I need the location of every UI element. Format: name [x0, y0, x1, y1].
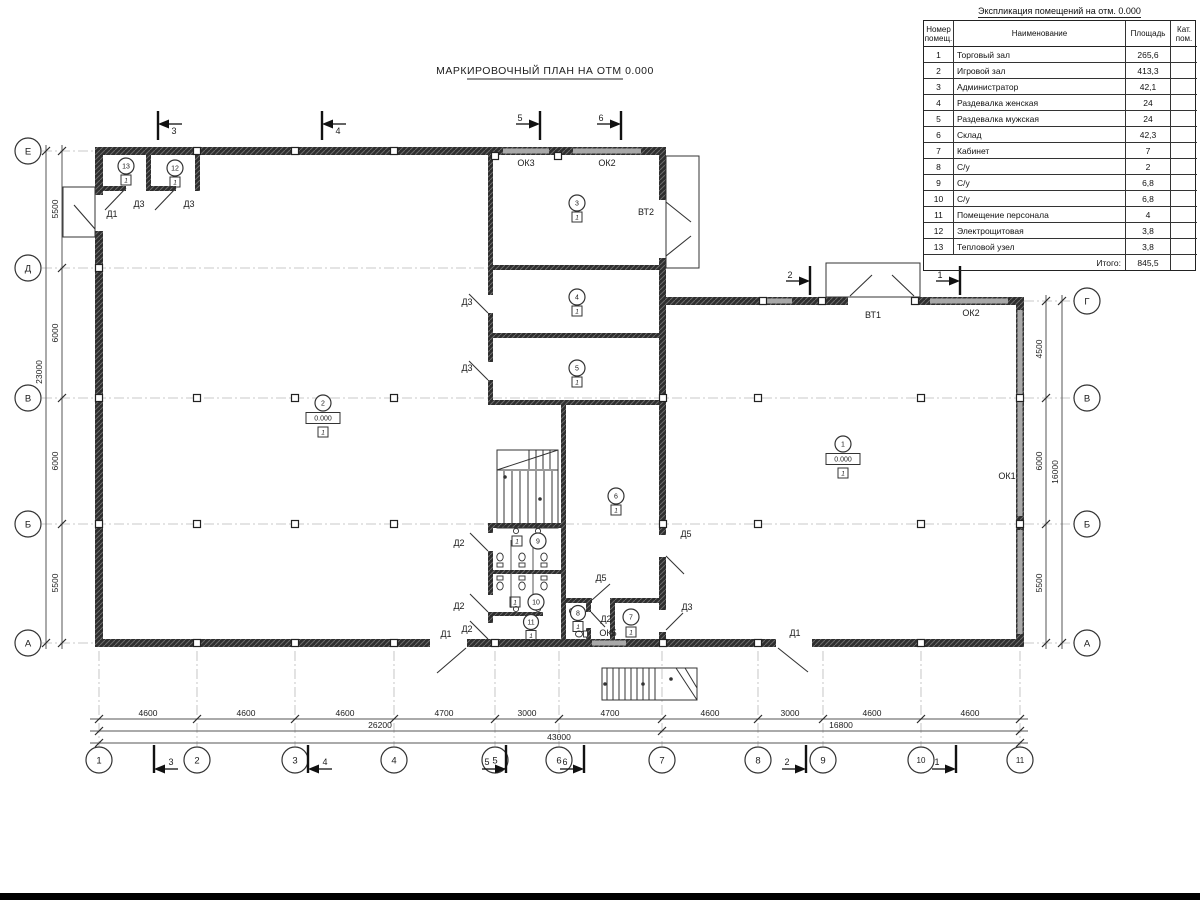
door-label-d3-4: Д3 — [461, 363, 472, 373]
door-label-d5-2: Д5 — [595, 573, 606, 583]
room-3-number: 3 — [575, 201, 579, 208]
dim-total: 43000 — [547, 732, 571, 742]
axis-7: 7 — [659, 756, 664, 767]
row-num: 6 — [924, 127, 954, 143]
axis-6: 6 — [556, 756, 561, 767]
window-label-ok1: ОК1 — [998, 471, 1015, 481]
dim-r2: 5500 — [1034, 573, 1044, 592]
row-name: Тепловой узел — [954, 239, 1126, 255]
axis-A-right: А — [1084, 639, 1091, 650]
row-name: Торговый зал — [954, 47, 1126, 63]
row-name: Игровой зал — [954, 63, 1126, 79]
sec-5-bottom: 5 — [484, 757, 489, 767]
col-header-area: Площадь — [1126, 21, 1171, 47]
sec-2-bottom: 2 — [784, 757, 789, 767]
row-area: 42,3 — [1126, 127, 1171, 143]
axis-G: Г — [1084, 297, 1089, 308]
col-header-name: Наименование — [954, 21, 1126, 47]
room-12-floor-type: 1 — [173, 180, 177, 187]
gate-label-vt1: ВТ1 — [865, 310, 881, 320]
room-3-floor-type: 1 — [575, 215, 579, 222]
dim-l2: 6000 — [50, 451, 60, 470]
row-name: Раздевалка мужская — [954, 111, 1126, 127]
row-area: 265,6 — [1126, 47, 1171, 63]
room-8-floor-type: 1 — [576, 624, 580, 631]
room-13-floor-type: 1 — [124, 178, 128, 185]
axis-V-right: В — [1084, 394, 1090, 405]
row-area: 3,8 — [1126, 239, 1171, 255]
axis-11: 11 — [1016, 756, 1025, 765]
room-5-number: 5 — [575, 366, 579, 373]
row-area: 4 — [1126, 207, 1171, 223]
door-label-d1-bottom-left: Д1 — [440, 629, 451, 639]
room-11-floor-type: 1 — [529, 633, 533, 640]
door-label-d3-2: Д3 — [183, 199, 194, 209]
room-11-number: 11 — [527, 620, 534, 627]
row-num: 10 — [924, 191, 954, 207]
row-num: 2 — [924, 63, 954, 79]
axis-D: Д — [25, 264, 32, 275]
room-2-elevation: 0.000 — [314, 416, 332, 423]
axis-E: Е — [25, 147, 31, 158]
row-cat — [1171, 95, 1197, 111]
external-stair — [602, 668, 697, 700]
schedule-title: Экспликация помещений на отм. 0.000 — [978, 6, 1141, 18]
row-area: 24 — [1126, 111, 1171, 127]
door-label-d3-3: Д3 — [461, 297, 472, 307]
axis-B-right: Б — [1084, 520, 1090, 531]
door-label-d2-1: Д2 — [453, 538, 464, 548]
axis-V-left: В — [25, 394, 31, 405]
row-name: С/у — [954, 175, 1126, 191]
door-openings — [94, 195, 916, 648]
col-header-area-text: Площадь — [1131, 29, 1166, 38]
sec-2-top: 2 — [787, 270, 792, 280]
room-1-number: 1 — [841, 442, 845, 449]
axis-4: 4 — [391, 756, 396, 767]
row-num: 5 — [924, 111, 954, 127]
room-7-floor-type: 1 — [629, 630, 633, 637]
axis-3: 3 — [292, 756, 297, 767]
row-name: Раздевалка женская — [954, 95, 1126, 111]
dim-b7: 3000 — [781, 708, 800, 718]
row-cat — [1171, 127, 1197, 143]
dim-sub0: 26200 — [368, 720, 392, 730]
row-cat — [1171, 223, 1197, 239]
drawing-sheet: 4600 4600 4600 4700 3000 4700 4600 3000 … — [0, 0, 1200, 900]
row-cat — [1171, 111, 1197, 127]
room-13-number: 13 — [122, 164, 130, 171]
col-header-number: Номер помещ. — [924, 21, 954, 47]
axis-8: 8 — [755, 756, 760, 767]
room-6-floor-type: 1 — [614, 508, 618, 515]
room-9-floor-type: 1 — [515, 539, 519, 546]
row-area: 42,1 — [1126, 79, 1171, 95]
row-cat — [1171, 63, 1197, 79]
dim-b1: 4600 — [237, 708, 256, 718]
window-label-ok2-right: ОК2 — [962, 308, 979, 318]
row-num: 9 — [924, 175, 954, 191]
dim-b2: 4600 — [336, 708, 355, 718]
room-4-floor-type: 1 — [575, 309, 579, 316]
axis-B-left: Б — [25, 520, 31, 531]
grid-bubbles-bottom: 1 2 3 4 5 6 7 8 9 10 11 — [86, 747, 1033, 773]
row-area: 6,8 — [1126, 191, 1171, 207]
sec-3-top: 3 — [171, 126, 176, 136]
row-name: Помещение персонала — [954, 207, 1126, 223]
room-8-number: 8 — [576, 611, 580, 618]
sec-6-top: 6 — [598, 113, 603, 123]
dim-b6: 4600 — [701, 708, 720, 718]
schedule-title-wrap: Экспликация помещений на отм. 0.000 — [923, 6, 1196, 16]
room-schedule: Экспликация помещений на отм. 0.000 Номе… — [923, 6, 1196, 271]
sec-1-bottom: 1 — [934, 757, 939, 767]
dim-l3: 5500 — [50, 573, 60, 592]
row-cat — [1171, 143, 1197, 159]
room-9-number: 9 — [536, 539, 540, 546]
row-cat — [1171, 159, 1197, 175]
door-leaves — [74, 188, 914, 673]
door-label-d2-4: Д2 — [600, 614, 611, 624]
col-header-number-line2: помещ. — [925, 34, 953, 43]
screen-bottom-edge — [0, 893, 1200, 900]
axis-9: 9 — [820, 756, 825, 767]
schedule-total-label: Итого: — [924, 255, 1126, 270]
row-cat — [1171, 79, 1197, 95]
plan-title: МАРКИРОВОЧНЫЙ ПЛАН НА ОТМ 0.000 — [436, 64, 654, 77]
door-label-d5-1: Д5 — [680, 529, 691, 539]
dimensions-right: 4500 6000 5500 16000 — [1034, 295, 1066, 649]
axis-2: 2 — [194, 756, 199, 767]
room-2-floor-type: 1 — [321, 430, 325, 437]
sec-4-top: 4 — [335, 126, 340, 136]
schedule-total-value: 845,5 — [1126, 255, 1171, 270]
col-header-cat-line2: пом. — [1176, 34, 1193, 43]
axis-centerlines — [42, 151, 1074, 746]
sec-6-bottom: 6 — [562, 757, 567, 767]
room-10-number: 10 — [532, 600, 540, 607]
col-header-cat: Кат. пом. — [1171, 21, 1197, 47]
room-6-number: 6 — [614, 494, 618, 501]
row-cat — [1171, 239, 1197, 255]
door-label-d3-5: Д3 — [681, 602, 692, 612]
grid-bubbles-right: Г В Б А — [1074, 288, 1100, 656]
internal-stair — [497, 450, 558, 528]
dim-b0: 4600 — [139, 708, 158, 718]
sec-3-bottom: 3 — [168, 757, 173, 767]
row-name: Склад — [954, 127, 1126, 143]
grid-bubbles-left: Е Д В Б А — [15, 138, 41, 656]
dim-ltotal: 23000 — [34, 360, 44, 384]
schedule-total-cat — [1171, 255, 1197, 270]
door-label-d2-3: Д2 — [461, 624, 472, 634]
dim-b5: 4700 — [601, 708, 620, 718]
room-2-number: 2 — [321, 401, 325, 408]
row-area: 3,8 — [1126, 223, 1171, 239]
room-5-floor-type: 1 — [575, 380, 579, 387]
dim-l1: 6000 — [50, 323, 60, 342]
door-label-d1-bottom-right: Д1 — [789, 628, 800, 638]
row-cat — [1171, 207, 1197, 223]
door-label-d1-left: Д1 — [106, 209, 117, 219]
col-header-name-text: Наименование — [1012, 29, 1067, 38]
room-1-elevation: 0.000 — [834, 457, 852, 464]
row-name: С/у — [954, 159, 1126, 175]
door-label-d3-1: Д3 — [133, 199, 144, 209]
dim-rtotal: 16000 — [1050, 460, 1060, 484]
door-label-d2-2: Д2 — [453, 601, 464, 611]
row-area: 413,3 — [1126, 63, 1171, 79]
row-num: 12 — [924, 223, 954, 239]
axis-1: 1 — [96, 756, 101, 767]
dim-r0: 4500 — [1034, 339, 1044, 358]
dim-b8: 4600 — [863, 708, 882, 718]
row-num: 7 — [924, 143, 954, 159]
row-name: С/у — [954, 191, 1126, 207]
dim-sub1: 16800 — [829, 720, 853, 730]
dim-b9: 4600 — [961, 708, 980, 718]
row-area: 6,8 — [1126, 175, 1171, 191]
col-header-number-line1: Номер — [926, 25, 951, 34]
dim-l0: 5500 — [50, 199, 60, 218]
sec-4-bottom: 4 — [322, 757, 327, 767]
row-name: Электрощитовая — [954, 223, 1126, 239]
gate-label-vt2: ВТ2 — [638, 207, 654, 217]
row-num: 13 — [924, 239, 954, 255]
row-area: 24 — [1126, 95, 1171, 111]
sec-1-top: 1 — [937, 270, 942, 280]
row-num: 8 — [924, 159, 954, 175]
room-1-floor-type: 1 — [841, 471, 845, 478]
row-area: 2 — [1126, 159, 1171, 175]
row-num: 3 — [924, 79, 954, 95]
room-7-number: 7 — [629, 615, 633, 622]
window-label-ok3: ОК3 — [517, 158, 534, 168]
dim-r1: 6000 — [1034, 451, 1044, 470]
dim-b4: 3000 — [518, 708, 537, 718]
room-12-number: 12 — [171, 166, 179, 173]
axis-10: 10 — [917, 756, 926, 765]
window-label-ok5: ОК5 — [599, 628, 616, 638]
row-name: Кабинет — [954, 143, 1126, 159]
axis-A-left: А — [25, 639, 32, 650]
row-cat — [1171, 175, 1197, 191]
row-num: 4 — [924, 95, 954, 111]
window-label-ok2-top: ОК2 — [598, 158, 615, 168]
row-cat — [1171, 47, 1197, 63]
sec-5-top: 5 — [517, 113, 522, 123]
room-10-floor-type: 1 — [513, 600, 517, 607]
row-num: 1 — [924, 47, 954, 63]
room-4-number: 4 — [575, 295, 579, 302]
row-name: Администратор — [954, 79, 1126, 95]
col-header-cat-line1: Кат. — [1177, 25, 1191, 34]
schedule-table: Номер помещ. Наименование Площадь Кат. п… — [923, 20, 1196, 271]
row-cat — [1171, 191, 1197, 207]
dim-b3: 4700 — [435, 708, 454, 718]
row-num: 11 — [924, 207, 954, 223]
row-area: 7 — [1126, 143, 1171, 159]
plan-title-group: МАРКИРОВОЧНЫЙ ПЛАН НА ОТМ 0.000 — [436, 64, 654, 79]
